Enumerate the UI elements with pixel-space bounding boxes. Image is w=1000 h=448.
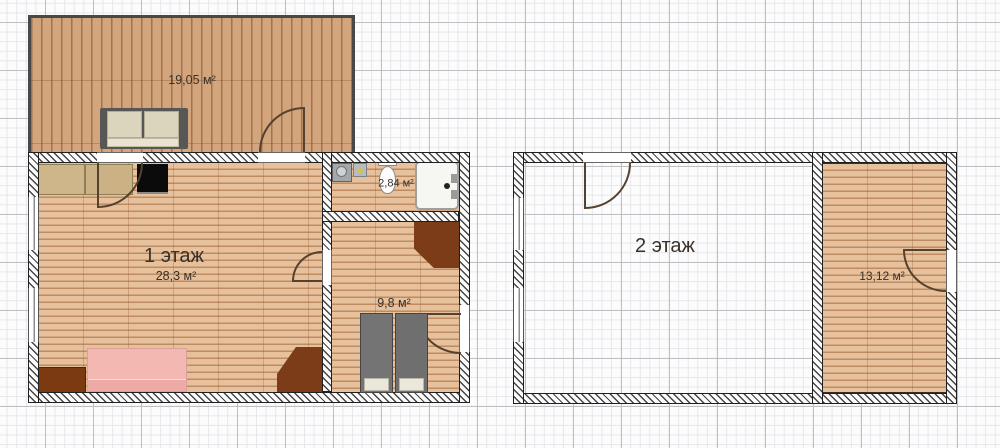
wall-f1-bathroom-bottom[interactable] — [322, 211, 459, 222]
bathroom-area-label: 2,84 м² — [378, 179, 414, 190]
wall-f2-left[interactable] — [513, 152, 524, 404]
room2-area-label: 13,12 м² — [859, 270, 905, 282]
wall-f2-bottom[interactable] — [513, 393, 957, 404]
sofa-bed-pink[interactable] — [87, 348, 187, 392]
wall-f1-bottom[interactable] — [28, 392, 470, 403]
floor1-area-label: 28,3 м² — [156, 270, 197, 283]
wall-f1-right[interactable] — [459, 152, 470, 403]
floor1-name-label: 1 этаж — [144, 246, 204, 266]
bed-single-right[interactable] — [395, 313, 428, 393]
sofa[interactable] — [100, 108, 188, 149]
sink-drain-icon — [358, 168, 363, 173]
window-f1-left-2[interactable] — [28, 288, 39, 342]
door-opening-terrace — [258, 152, 305, 163]
door-opening-f2-top — [583, 152, 631, 163]
washing-machine[interactable] — [332, 163, 352, 182]
window-f1-left-1[interactable] — [28, 197, 39, 250]
sofa-bed-pink-front — [88, 379, 186, 391]
wall-f2-top[interactable] — [513, 152, 957, 163]
dresser[interactable] — [37, 367, 86, 393]
door-opening-bedroom — [322, 250, 332, 285]
sofa-cushion-left — [107, 111, 142, 138]
window-f2-left-1[interactable] — [513, 198, 524, 250]
wall-f2-interior-vertical[interactable] — [812, 152, 823, 404]
shower-faucet-icon — [451, 174, 457, 183]
bed-right-pillow — [399, 378, 424, 391]
shower-drain-icon — [444, 183, 450, 189]
door-opening-f2-right — [946, 250, 957, 292]
wall-f1-top[interactable] — [28, 152, 470, 163]
bed-single-left[interactable] — [360, 313, 393, 393]
sofa-cushion-right — [144, 111, 179, 138]
door-f2-hall-swing-arc — [585, 163, 631, 209]
shower-tray[interactable] — [415, 161, 459, 210]
bedroom-area-label: 9,8 м² — [377, 297, 411, 310]
terrace-area-label: 19,05 м² — [168, 74, 216, 87]
window-f2-left-2[interactable] — [513, 288, 524, 342]
kitchen-counter-1[interactable] — [38, 164, 85, 195]
wall-f1-left[interactable] — [28, 152, 39, 403]
washing-machine-drum-icon — [336, 166, 347, 177]
bed-left-pillow — [364, 378, 389, 391]
sofa-seat-front — [107, 138, 179, 147]
shower-faucet-icon-2 — [451, 190, 457, 199]
door-opening-kitchen — [97, 152, 143, 163]
bathroom-sink[interactable] — [353, 163, 367, 177]
floor-plan-canvas: 19,05 м² 1 этаж 28,3 м² 2,84 м² 9,8 м² 2… — [0, 0, 1000, 448]
floor2-name-label: 2 этаж — [635, 236, 695, 256]
